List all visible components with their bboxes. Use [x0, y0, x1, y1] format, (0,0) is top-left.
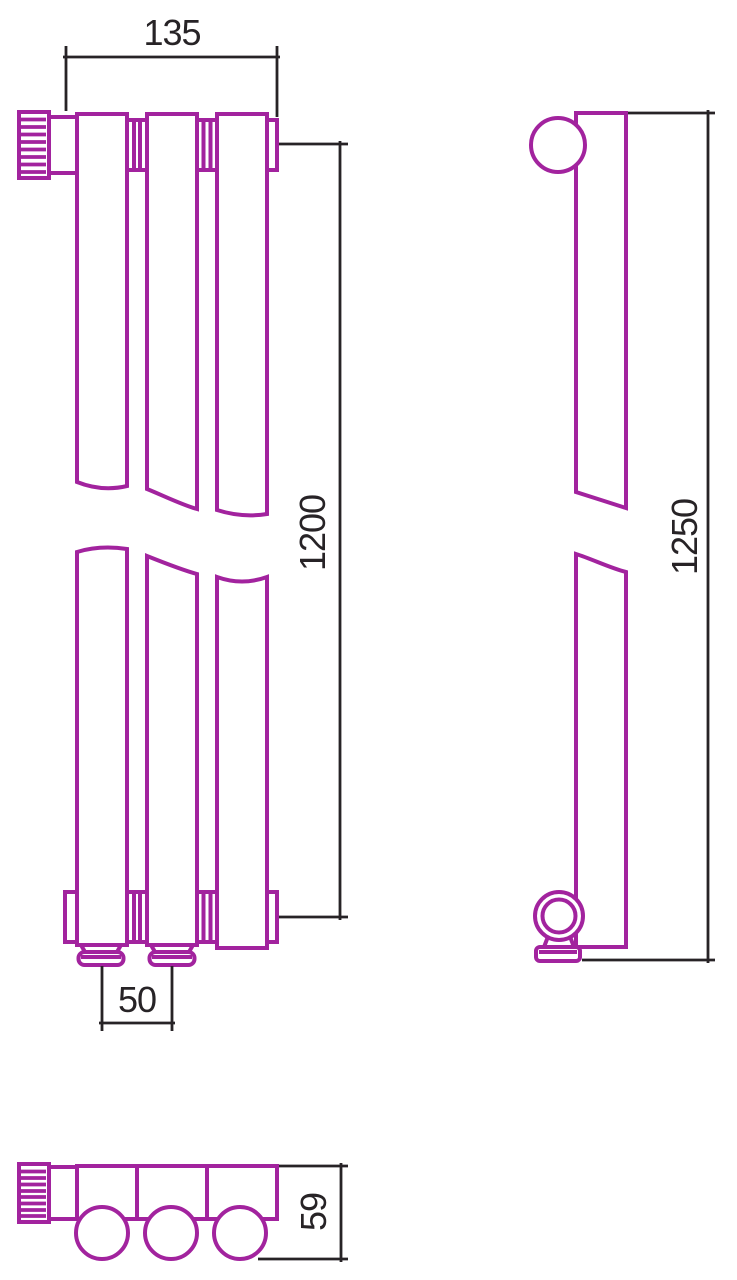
tube-1-section	[76, 1207, 128, 1259]
side-valve-knob	[531, 118, 585, 172]
dim-front-height-label: 1200	[292, 495, 333, 571]
dim-pitch-label: 50	[118, 979, 156, 1020]
dim-width-label: 135	[143, 12, 200, 53]
technical-drawing: 135 1200 50 1250 59	[0, 0, 737, 1280]
side-bottom-fitting	[535, 892, 583, 961]
dim-depth-label: 59	[293, 1193, 334, 1231]
tube-3-section	[214, 1207, 266, 1259]
drawing-canvas: 135 1200 50 1250 59	[0, 0, 737, 1280]
tube-2-section	[145, 1207, 197, 1259]
dim-side-height-label: 1250	[664, 499, 705, 575]
